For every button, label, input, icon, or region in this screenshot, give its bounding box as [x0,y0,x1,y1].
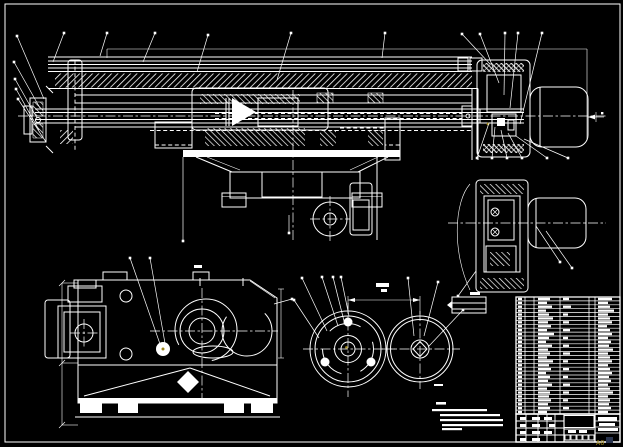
handwheel-view [303,303,395,397]
title-block-stamp [606,437,613,443]
right-top-fan [461,32,544,124]
cad-drawing-canvas: A0 [0,0,623,447]
top-fan [53,32,386,80]
gearbox-view [45,272,280,428]
gearbox-leaders [129,257,294,349]
sheet-size-mark: A0 [596,439,604,447]
parts-list-table [516,297,620,414]
saddle-leaders [182,157,291,242]
main-assembly-view [18,49,606,242]
plain-wheel-view [382,311,460,389]
right-mid-fan [476,123,570,159]
technical-notes-text [432,384,503,430]
